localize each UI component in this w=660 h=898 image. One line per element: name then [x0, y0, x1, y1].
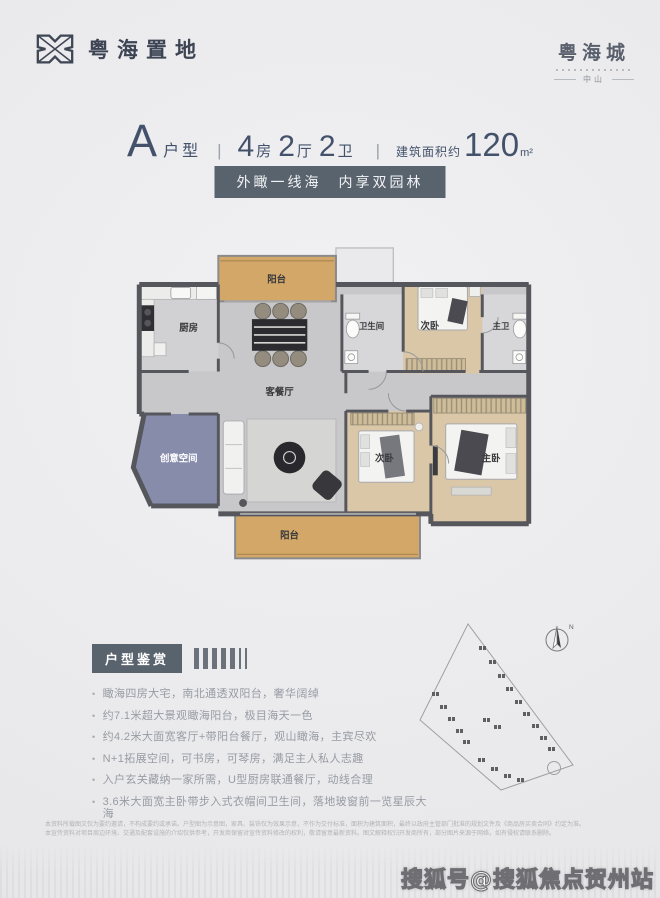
label-kitchen: 厨房	[179, 322, 198, 333]
area-label: 建筑面积约	[396, 143, 461, 160]
disclaimer-line2: 本宣传资料对项目周边环境、交通及配套设施的介绍仅供参考，开发商保留对宣传资料修改…	[45, 830, 618, 839]
dining-set	[252, 303, 307, 366]
watermark: 搜狐号@搜狐焦点贺州站	[401, 862, 654, 894]
label-balcony-bottom: 阳台	[280, 530, 299, 541]
feature-item: 3.6米大面宽主卧带步入式衣帽间卫生间，落地玻窗前一览星辰大海	[92, 796, 438, 820]
label-living-dining: 客餐厅	[265, 386, 295, 397]
brand-yuehai-land: 粤海置地	[34, 28, 204, 70]
disclaimer-line1: 本资料所载图文仅为要约邀请，不构成要约或承诺。户型图为示意图，家具、装饰仅为效果…	[45, 821, 618, 830]
title-divider-2: |	[376, 141, 380, 161]
features-section: 户型鉴赏 瞰海四房大宅，南北通透双阳台，奢华阔绰 约7.1米超大景观瞰海阳台，极…	[92, 644, 438, 829]
spec-baths-unit: 卫	[338, 140, 353, 161]
label-master-bath: 主卫	[493, 321, 510, 331]
legal-disclaimer: 本资料所载图文仅为要约邀请，不构成要约或承诺。户型图为示意图，家具、装饰仅为效果…	[45, 821, 618, 839]
north-label: N	[569, 624, 574, 631]
room-ac-ledge	[336, 248, 393, 285]
label-bedroom2-bottom: 次卧	[375, 452, 394, 463]
site-buildings	[432, 646, 555, 782]
siteplan-sketch: N	[402, 608, 638, 808]
features-heading: 户型鉴赏	[92, 644, 182, 673]
site-landmark	[548, 762, 561, 775]
room-balcony-bottom	[235, 514, 420, 558]
feature-item: 瞰海四房大宅，南北通透双阳台，奢华阔绰	[92, 688, 438, 700]
floorplan-drawing: 阳台 厨房 客餐厅 卫生间 次卧 主卫 创意空间 次卧 主卧 阳台	[129, 244, 537, 588]
area-number: 120	[464, 126, 519, 164]
spec-rooms-unit: 房	[256, 140, 271, 161]
brand-right-name: 粤海城	[554, 38, 634, 65]
feature-item: 入户玄关藏纳一家所需，U型厨房联通餐厅，动线合理	[92, 774, 438, 786]
poster-page: { "brand_left": { "name": "粤海置地" }, "bra…	[0, 0, 660, 898]
title-divider: |	[217, 141, 221, 161]
spec-rooms-number: 4	[238, 130, 255, 164]
unit-word: 户型	[163, 137, 201, 161]
spec-halls-unit: 厅	[297, 140, 312, 161]
feature-item: N+1拓展空间，可书房，可琴房，满足主人私人志趣	[92, 753, 438, 765]
brand-right-divider	[556, 69, 632, 71]
butterfly-logo-icon	[34, 28, 76, 70]
brand-left-name: 粤海置地	[88, 34, 204, 64]
floorplan: 阳台 厨房 客餐厅 卫生间 次卧 主卫 创意空间 次卧 主卧 阳台	[129, 244, 537, 588]
feature-list: 瞰海四房大宅，南北通透双阳台，奢华阔绰 约7.1米超大景观瞰海阳台，极目海天一色…	[92, 688, 438, 820]
label-bath: 卫生间	[359, 321, 384, 331]
living-furniture	[223, 419, 344, 507]
unit-letter: A	[127, 118, 157, 163]
label-creative-space: 创意空间	[159, 452, 198, 463]
label-master-bedroom: 主卧	[482, 452, 501, 463]
barcode-decoration	[194, 648, 247, 669]
area-unit: m²	[520, 147, 533, 159]
slogan-badge: 外瞰一线海 内享双园林	[215, 166, 446, 198]
north-arrow-icon: N	[546, 624, 574, 651]
bedroom2-bottom-furniture	[351, 413, 423, 482]
label-bedroom2-top: 次卧	[420, 320, 439, 331]
label-balcony-top: 阳台	[267, 274, 286, 285]
brand-yuehai-city: 粤海城 中山	[554, 38, 634, 85]
feature-item: 约4.2米大面宽客厅+带阳台餐厅，观山瞰海，主宾尽欢	[92, 731, 438, 743]
spec-halls-number: 2	[278, 130, 295, 164]
features-header: 户型鉴赏	[92, 644, 438, 673]
unit-title: A 户型 | 4 房 2 厅 2 卫 | 建筑面积约 120 m²	[0, 118, 660, 164]
feature-item: 约7.1米超大景观瞰海阳台，极目海天一色	[92, 710, 438, 722]
spec-baths-number: 2	[319, 130, 336, 164]
brand-right-city: 中山	[554, 74, 634, 85]
